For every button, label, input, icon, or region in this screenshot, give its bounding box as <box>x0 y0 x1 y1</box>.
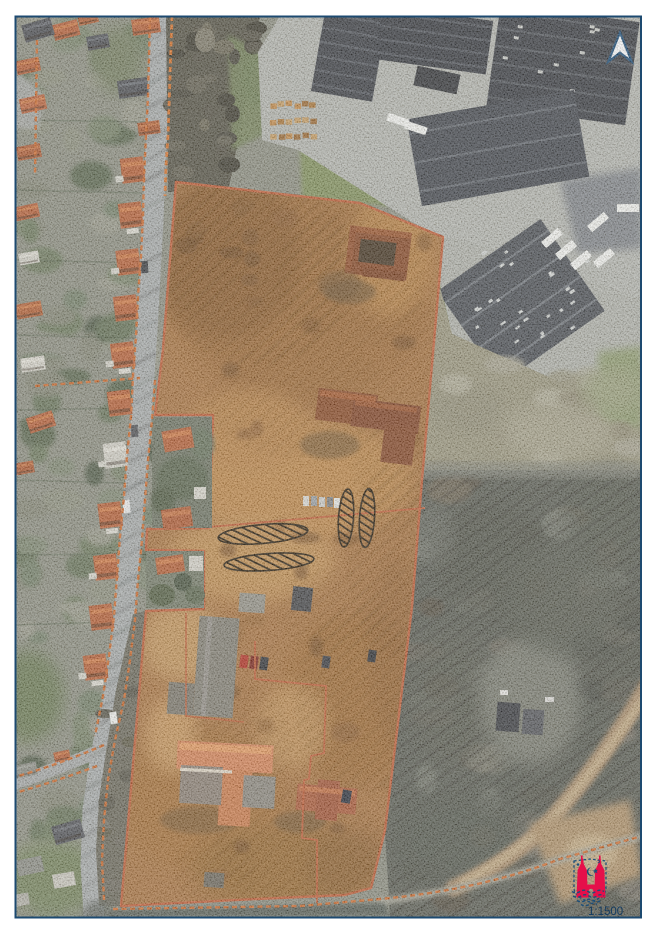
svg-text:1:1500: 1:1500 <box>588 906 623 918</box>
